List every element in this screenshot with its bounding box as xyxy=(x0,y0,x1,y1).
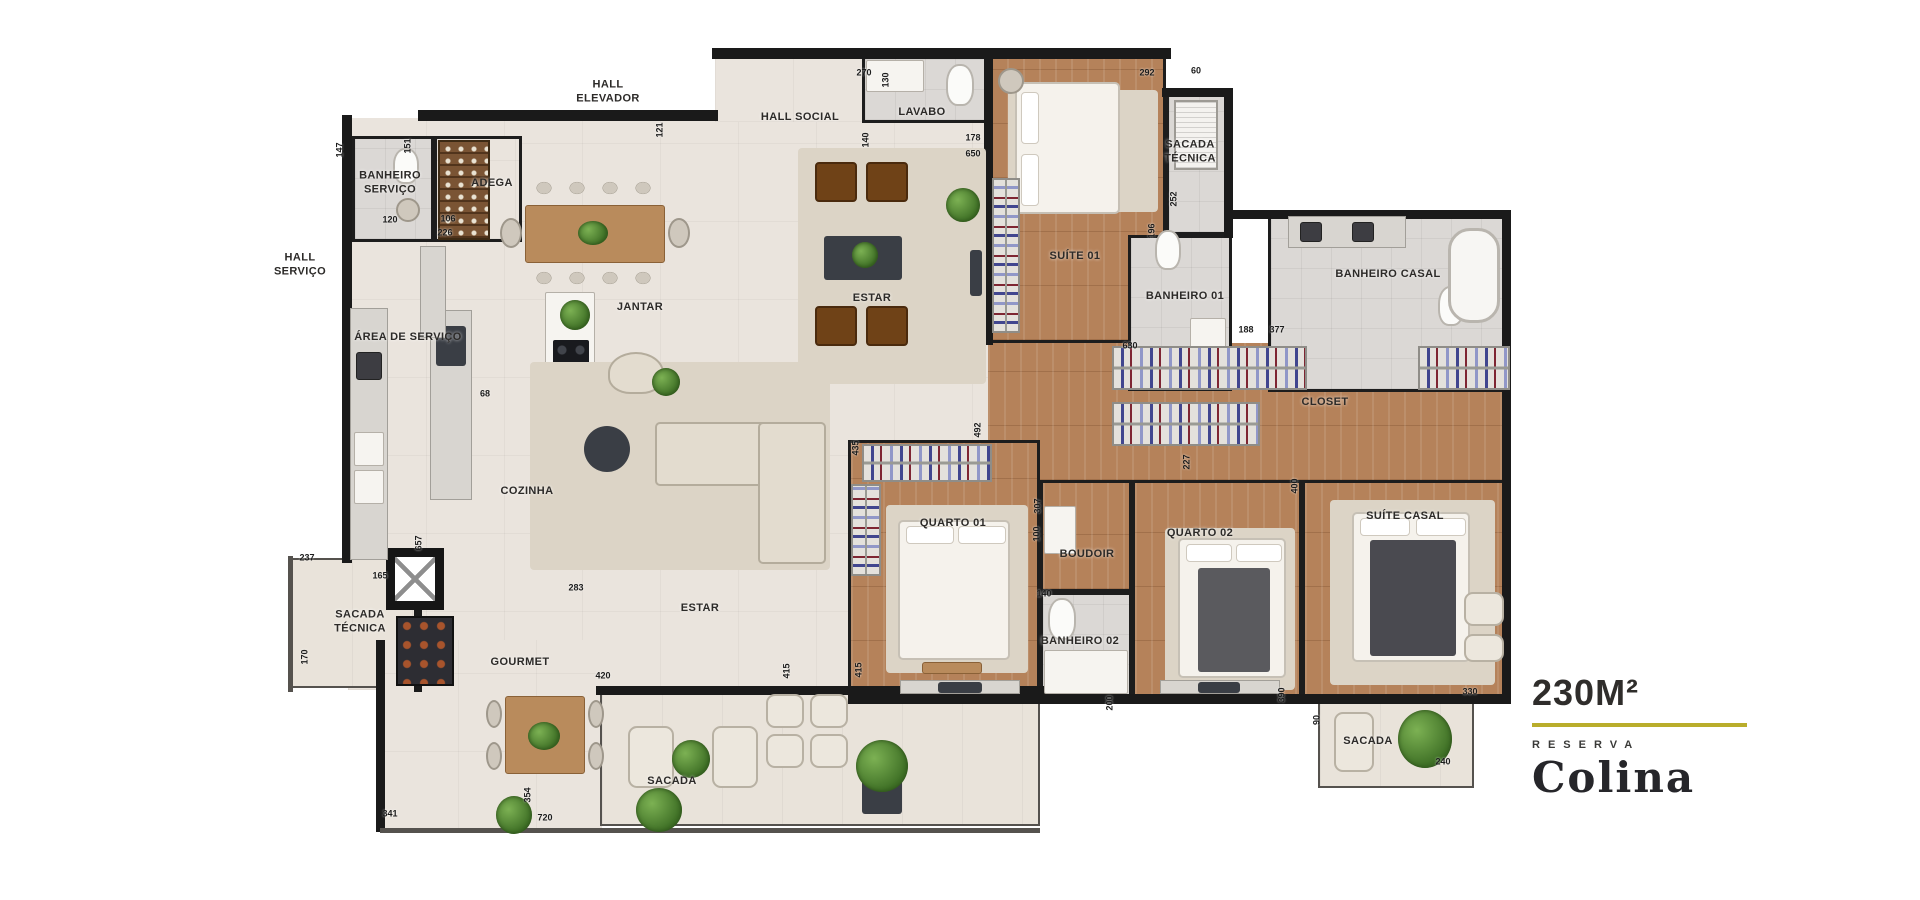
room-label: BANHEIRO 01 xyxy=(1146,289,1224,303)
dimension-label: 68 xyxy=(480,390,490,399)
closet-rack-a xyxy=(1112,346,1307,390)
brand-reserva-text: RESERVA xyxy=(1532,739,1752,751)
armchair-1 xyxy=(815,162,857,202)
dimension-label: 377 xyxy=(1269,326,1284,335)
coffee-table-plant xyxy=(852,242,878,268)
casal-sink-1 xyxy=(1300,222,1322,242)
room-label: HALL SOCIAL xyxy=(761,110,839,124)
closet-rack-b xyxy=(1112,402,1260,446)
dimension-label: 106 xyxy=(440,215,455,224)
dimension-label: 330 xyxy=(1462,688,1477,697)
banheiro01-toilet xyxy=(1155,230,1181,270)
suite-casal-blanket xyxy=(1370,540,1456,656)
room-label: JANTAR xyxy=(617,300,663,314)
dining-chair-right xyxy=(668,218,690,248)
dimension-label: 196 xyxy=(1148,223,1157,238)
dimension-label: 415 xyxy=(783,663,792,678)
quarto01-wardrobe-left xyxy=(851,484,881,576)
elevator-shaft xyxy=(386,548,444,610)
room-label: HALL SERVIÇO xyxy=(274,251,326,280)
elevator-x-icon xyxy=(395,557,435,601)
bathtub xyxy=(1448,228,1500,323)
suite01-wardrobe xyxy=(992,178,1020,333)
gourmet-chair-1 xyxy=(486,700,502,728)
dimension-label: 121 xyxy=(656,122,665,137)
quarto01-bed xyxy=(898,520,1010,660)
pouf-2 xyxy=(810,694,848,728)
dimension-label: 170 xyxy=(301,649,310,664)
dimension-label: 390 xyxy=(1278,687,1287,702)
dimension-label: 178 xyxy=(965,134,980,143)
washer xyxy=(354,432,384,466)
dimension-label: 100 xyxy=(1033,526,1042,541)
suite01-pillow xyxy=(1021,92,1039,144)
room-label: BANHEIRO 02 xyxy=(1041,634,1119,648)
suite-casal-chair xyxy=(1464,592,1504,626)
dimension-label: 252 xyxy=(1170,191,1179,206)
dimension-label: 165 xyxy=(372,572,387,581)
estar-upper-plant xyxy=(946,188,980,222)
wall-top-sacada-tecnica xyxy=(1162,88,1232,97)
floorplan-canvas: HALL ELEVADORHALL SOCIALLAVABOBANHEIRO S… xyxy=(0,0,1920,900)
room-label: BOUDOIR xyxy=(1060,547,1115,561)
wall-gourmet-left xyxy=(376,640,385,832)
room-label: HALL ELEVADOR xyxy=(576,78,640,107)
laundry-sink xyxy=(356,352,382,380)
dimension-label: 60 xyxy=(1191,67,1201,76)
suite01-side-table xyxy=(998,68,1024,94)
pouf-4 xyxy=(810,734,848,768)
room-label: LAVABO xyxy=(898,105,945,119)
lavabo-counter xyxy=(866,60,924,92)
quarto01-tv xyxy=(938,682,982,693)
service-sink xyxy=(396,198,420,222)
pouf-3 xyxy=(766,734,804,768)
armchair-4 xyxy=(866,306,908,346)
grill-churrasqueira xyxy=(396,616,454,686)
suite01-pillow-2 xyxy=(1021,154,1039,206)
dimension-label: 130 xyxy=(882,72,891,87)
dimension-label: 492 xyxy=(974,422,983,437)
wall-bottom-bedrooms xyxy=(848,694,1511,704)
room-label: SACADA xyxy=(647,774,696,788)
dimension-label: 151 xyxy=(404,138,413,153)
room-label: ÁREA DE SERVIÇO xyxy=(354,330,461,344)
wall-top-hall-social xyxy=(712,48,992,59)
estar-lower-plant xyxy=(652,368,680,396)
sacada-plant-center xyxy=(636,788,682,832)
dimension-label: 400 xyxy=(1291,478,1300,493)
armchair-3 xyxy=(815,306,857,346)
banheiro02-shower xyxy=(1044,650,1128,694)
quarto02-blanket xyxy=(1198,568,1270,672)
dimension-label: 283 xyxy=(568,584,583,593)
dimension-label: 120 xyxy=(382,216,397,225)
gourmet-centerpiece xyxy=(528,722,560,750)
wall-sacada-tecnica-left-edge xyxy=(288,556,293,692)
lounge-chair-2 xyxy=(712,726,758,788)
kitchen-plant xyxy=(560,300,590,330)
room-label: QUARTO 02 xyxy=(1167,526,1233,540)
dimension-label: 227 xyxy=(1183,454,1192,469)
quarto01-wardrobe-top xyxy=(862,444,992,482)
gourmet-chair-2 xyxy=(588,700,604,728)
logo-block: 230M² RESERVA Colina xyxy=(1532,672,1752,802)
room-label: SACADA TÉCNICA xyxy=(334,608,386,637)
room-label: CLOSET xyxy=(1301,395,1348,409)
gourmet-chair-3 xyxy=(486,742,502,770)
room-label: ADEGA xyxy=(471,176,513,190)
dimension-label: 240 xyxy=(1435,758,1450,767)
quarto02-bed xyxy=(1178,538,1286,678)
dimension-label: 720 xyxy=(537,814,552,823)
pouf-1 xyxy=(766,694,804,728)
estar-lower-side-table xyxy=(584,426,630,472)
area-size-text: 230M² xyxy=(1532,672,1752,714)
sacada-plant-table xyxy=(672,740,710,778)
dining-chairs-bottom xyxy=(528,266,662,290)
room-label: SACADA TÉCNICA xyxy=(1164,138,1216,167)
dimension-label: 354 xyxy=(524,787,533,802)
dimension-label: 630 xyxy=(1122,342,1137,351)
dimension-label: 140 xyxy=(862,132,871,147)
wall-sacada-bottom xyxy=(380,828,1040,833)
room-label: GOURMET xyxy=(490,655,549,669)
gourmet-chair-4 xyxy=(588,742,604,770)
dimension-label: 200 xyxy=(1106,695,1115,710)
quarto02-tv xyxy=(1198,682,1240,693)
room-label: SACADA xyxy=(1343,734,1392,748)
sacada-plant-right xyxy=(856,740,908,792)
dimension-label: 341 xyxy=(382,810,397,819)
laundry-cabinet xyxy=(420,246,446,338)
room-label: COZINHA xyxy=(501,484,554,498)
room-label: BANHEIRO CASAL xyxy=(1335,267,1440,281)
dimension-label: 435 xyxy=(852,440,861,455)
wall-top-suite01 xyxy=(986,48,1171,59)
armchair-2 xyxy=(866,162,908,202)
dimension-label: 420 xyxy=(595,672,610,681)
dimension-label: 270 xyxy=(856,69,871,78)
wall-top-left xyxy=(418,110,718,121)
dining-chairs-top xyxy=(528,176,662,200)
dimension-label: 188 xyxy=(1238,326,1253,335)
quarto02-pillow xyxy=(1186,544,1232,562)
dimension-label: 415 xyxy=(855,662,864,677)
suite-casal-ottoman xyxy=(1464,634,1504,662)
suite01-bed xyxy=(1015,82,1120,214)
closet-rack-c xyxy=(1418,346,1510,390)
logo-underline xyxy=(1532,723,1747,727)
wall-right-main xyxy=(1502,210,1511,702)
room-label: SUÍTE 01 xyxy=(1050,249,1101,263)
dimension-label: 147 xyxy=(336,142,345,157)
dryer xyxy=(354,470,384,504)
room-label: SUÍTE CASAL xyxy=(1366,509,1444,523)
dimension-label: 140 xyxy=(1036,590,1051,599)
quarto02-pillow-2 xyxy=(1236,544,1282,562)
dimension-label: 237 xyxy=(299,554,314,563)
dining-centerpiece xyxy=(578,221,608,245)
dining-chair-left xyxy=(500,218,522,248)
dimension-label: 90 xyxy=(1313,715,1322,725)
lavabo-toilet xyxy=(946,64,974,106)
dimension-label: 650 xyxy=(965,150,980,159)
sofa-chaise xyxy=(758,422,826,564)
dimension-label: 657 xyxy=(415,535,424,550)
brand-colina-wordmark: Colina xyxy=(1532,753,1752,802)
dimension-label: 226 xyxy=(437,229,452,238)
room-label: ESTAR xyxy=(853,291,891,305)
room-label: QUARTO 01 xyxy=(920,516,986,530)
quarto01-bench xyxy=(922,662,982,674)
dimension-label: 307 xyxy=(1034,498,1043,513)
casal-sink-2 xyxy=(1352,222,1374,242)
dimension-label: 292 xyxy=(1139,69,1154,78)
estar-upper-tv xyxy=(970,250,982,296)
room-label: ESTAR xyxy=(681,601,719,615)
room-label: BANHEIRO SERVIÇO xyxy=(359,169,421,198)
suite-casal-bed xyxy=(1352,512,1470,662)
